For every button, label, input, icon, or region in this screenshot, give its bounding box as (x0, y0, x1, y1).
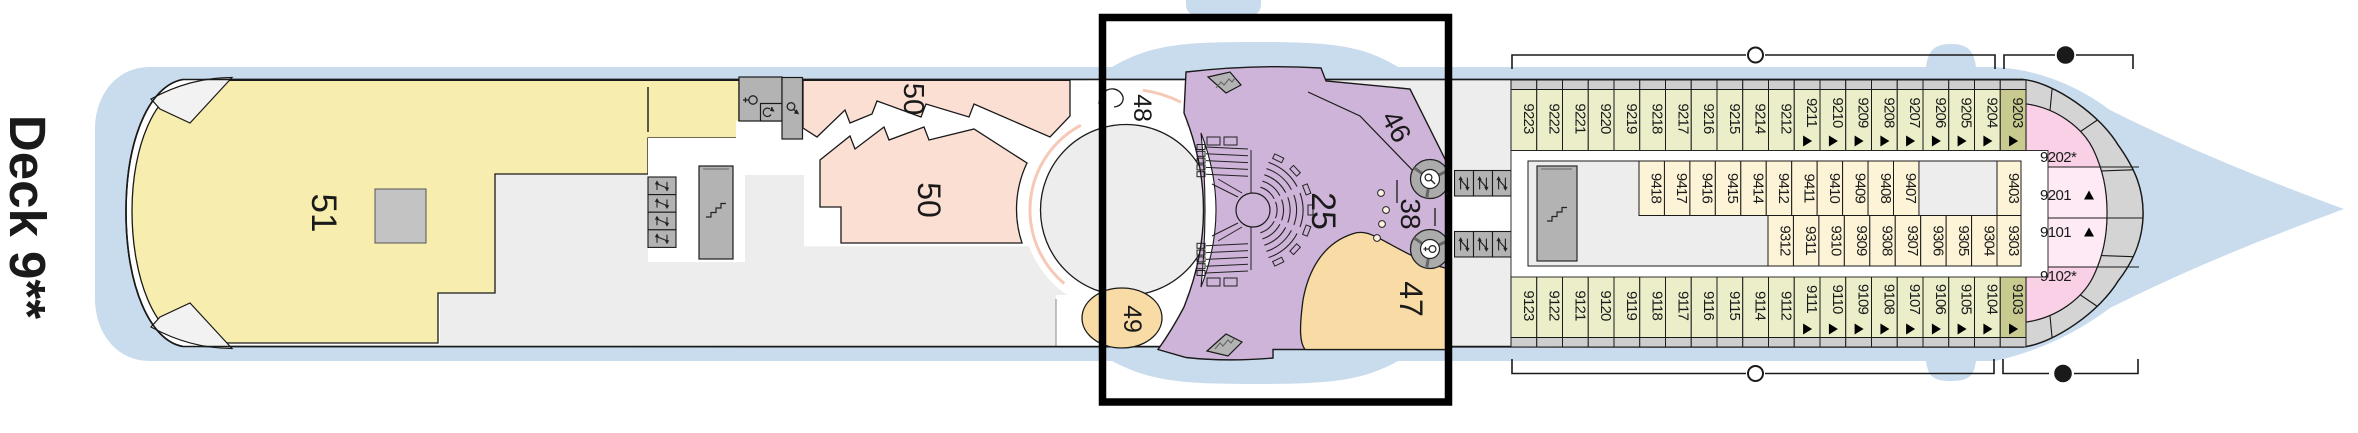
svg-text:9101: 9101 (2040, 224, 2071, 241)
svg-text:Deck 9**: Deck 9** (0, 115, 56, 319)
svg-text:9115: 9115 (1726, 291, 1743, 321)
svg-text:9312: 9312 (1777, 225, 1794, 256)
svg-text:9417: 9417 (1673, 173, 1690, 204)
svg-text:9222: 9222 (1546, 103, 1563, 134)
svg-text:9308: 9308 (1879, 225, 1896, 256)
svg-text:9409: 9409 (1851, 173, 1868, 204)
svg-text:9416: 9416 (1699, 173, 1716, 204)
svg-text:9403: 9403 (2005, 173, 2022, 204)
svg-text:9109: 9109 (1855, 284, 1872, 315)
svg-text:9103: 9103 (2009, 284, 2026, 315)
svg-text:9310: 9310 (1828, 225, 1845, 256)
svg-text:9111: 9111 (1803, 285, 1820, 313)
svg-text:9303: 9303 (2005, 225, 2022, 256)
svg-text:9412: 9412 (1775, 173, 1792, 204)
svg-text:49: 49 (1118, 305, 1146, 333)
svg-text:48: 48 (1128, 94, 1156, 122)
svg-text:9305: 9305 (1955, 225, 1972, 256)
svg-text:9202*: 9202* (2040, 149, 2077, 166)
svg-text:9410: 9410 (1826, 173, 1843, 204)
svg-text:25: 25 (1304, 192, 1342, 230)
svg-text:47: 47 (1393, 281, 1429, 317)
svg-text:9306: 9306 (1929, 225, 1946, 256)
svg-text:9218: 9218 (1649, 103, 1666, 134)
svg-text:51: 51 (304, 194, 343, 233)
svg-text:9102*: 9102* (2040, 268, 2077, 285)
svg-text:9114: 9114 (1752, 291, 1769, 321)
svg-text:9112: 9112 (1777, 291, 1794, 321)
svg-text:9121: 9121 (1571, 290, 1588, 321)
svg-text:9118: 9118 (1649, 291, 1666, 321)
svg-text:9221: 9221 (1571, 103, 1588, 134)
svg-text:9105: 9105 (1958, 284, 1975, 315)
svg-text:9304: 9304 (1980, 225, 1997, 256)
svg-text:50: 50 (897, 83, 929, 115)
svg-text:9216: 9216 (1700, 103, 1717, 134)
svg-text:9108: 9108 (1880, 284, 1897, 315)
svg-text:9204: 9204 (1983, 97, 2000, 128)
svg-text:9414: 9414 (1750, 173, 1767, 204)
svg-text:9207: 9207 (1906, 97, 1923, 128)
svg-text:9214: 9214 (1752, 103, 1769, 134)
svg-text:9110: 9110 (1829, 284, 1846, 314)
svg-text:9209: 9209 (1855, 97, 1872, 128)
svg-text:9223: 9223 (1520, 103, 1537, 134)
svg-text:50: 50 (911, 182, 947, 218)
svg-text:9408: 9408 (1877, 173, 1894, 204)
svg-text:9309: 9309 (1853, 225, 1870, 256)
svg-text:9208: 9208 (1880, 97, 1897, 128)
svg-text:9210: 9210 (1829, 97, 1846, 128)
svg-text:9415: 9415 (1724, 173, 1741, 204)
svg-text:9219: 9219 (1623, 103, 1640, 134)
svg-text:9120: 9120 (1597, 290, 1614, 321)
svg-text:9107: 9107 (1906, 284, 1923, 315)
svg-text:9215: 9215 (1726, 103, 1743, 134)
svg-text:9205: 9205 (1958, 97, 1975, 128)
svg-text:9217: 9217 (1674, 103, 1691, 134)
svg-text:9418: 9418 (1648, 173, 1665, 204)
svg-text:9122: 9122 (1546, 290, 1563, 321)
svg-text:9104: 9104 (1983, 284, 2000, 315)
svg-text:9212: 9212 (1777, 103, 1794, 134)
svg-text:9117: 9117 (1674, 291, 1691, 321)
svg-text:9106: 9106 (1932, 284, 1949, 315)
svg-text:9116: 9116 (1700, 291, 1717, 321)
svg-text:9201: 9201 (2040, 187, 2071, 204)
svg-text:9411: 9411 (1800, 173, 1817, 203)
svg-text:9220: 9220 (1597, 103, 1614, 134)
svg-text:38: 38 (1395, 198, 1426, 229)
svg-text:9119: 9119 (1623, 291, 1640, 321)
svg-text:9311: 9311 (1802, 226, 1819, 256)
svg-text:9307: 9307 (1904, 225, 1921, 256)
svg-text:9203: 9203 (2009, 97, 2026, 128)
svg-text:9123: 9123 (1520, 290, 1537, 321)
svg-text:9206: 9206 (1932, 97, 1949, 128)
svg-text:9407: 9407 (1902, 173, 1919, 204)
svg-text:9211: 9211 (1803, 98, 1820, 128)
